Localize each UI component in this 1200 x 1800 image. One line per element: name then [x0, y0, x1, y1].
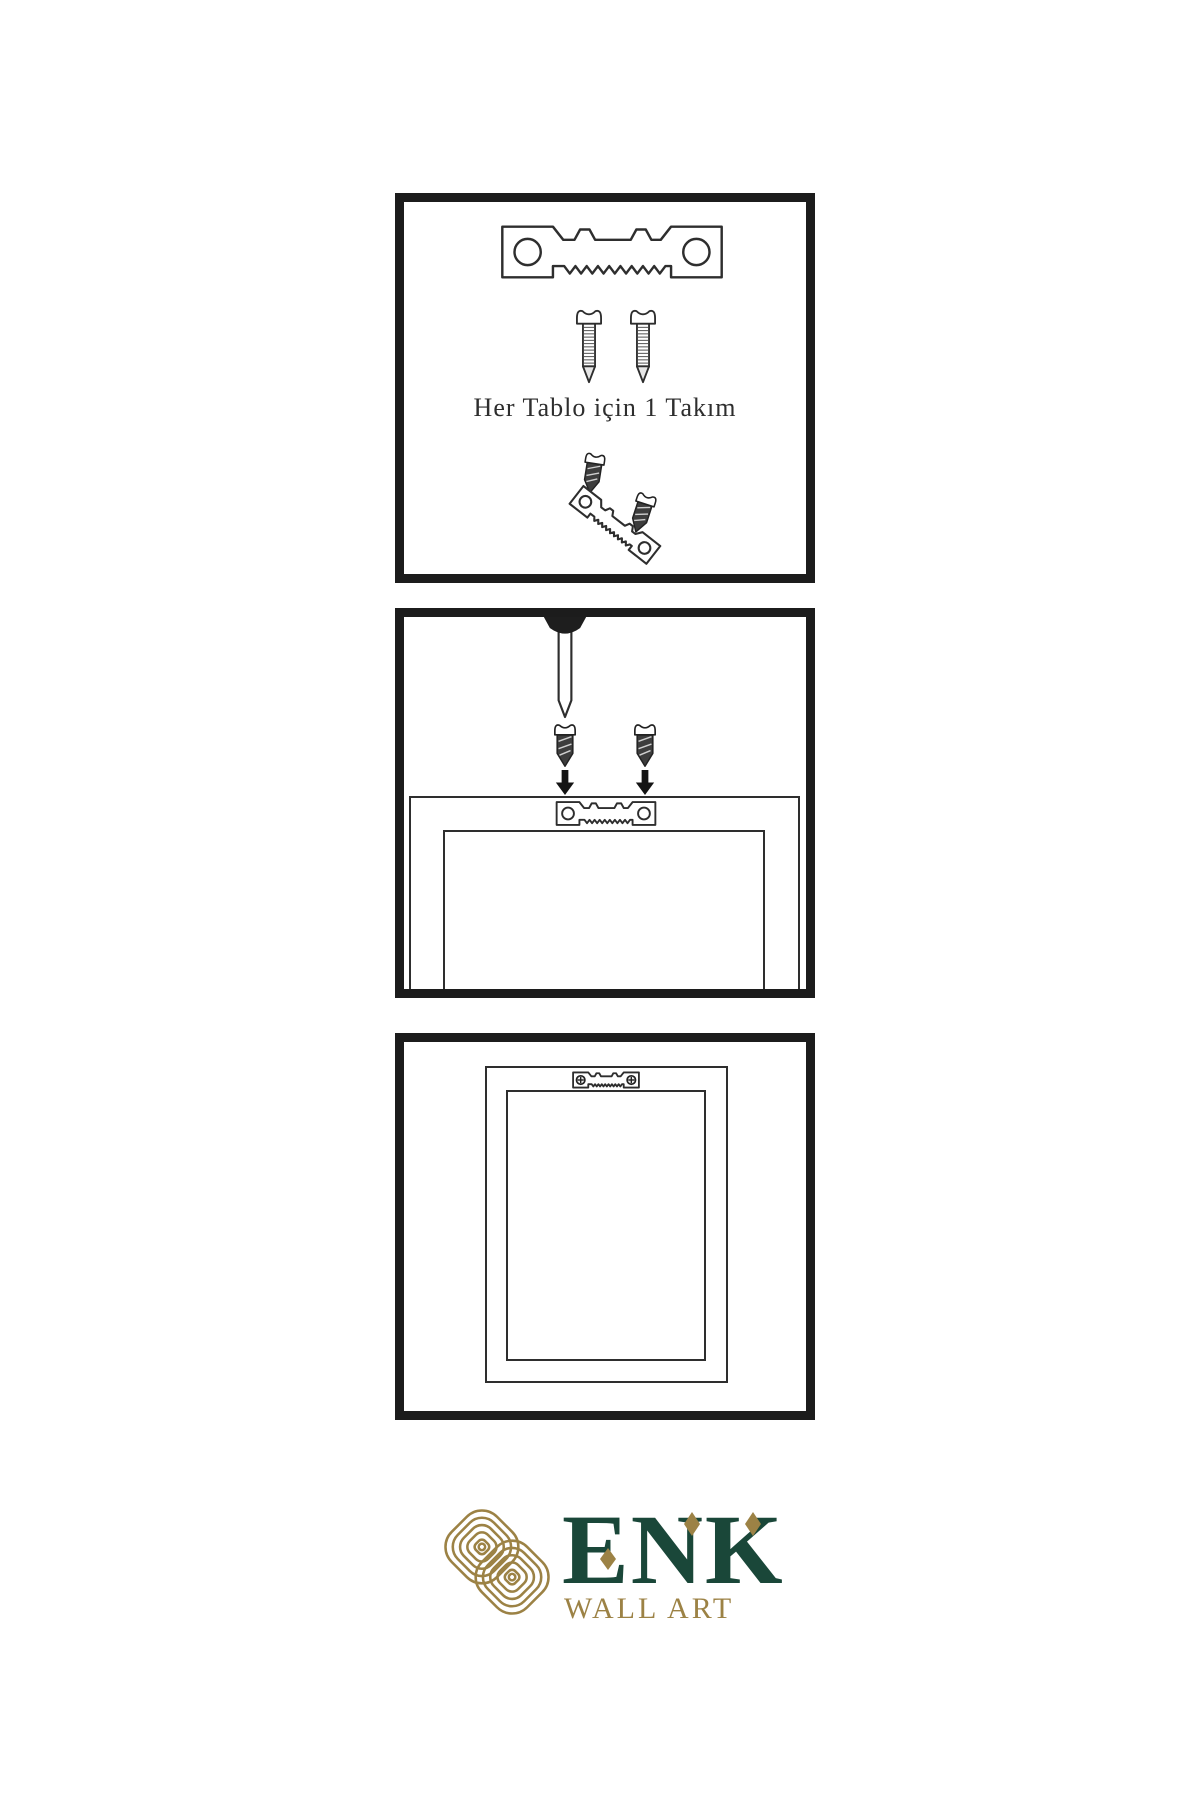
angled-sawtooth-hanger-icon [565, 448, 695, 568]
screw-icon [626, 306, 660, 384]
sawtooth-hanger-icon [494, 222, 730, 282]
sawtooth-hanger-icon [553, 800, 659, 827]
brand-subtitle: WALL ART [564, 1594, 734, 1624]
screw-icon [572, 306, 606, 384]
picture-mat-window [506, 1090, 706, 1361]
down-arrow-icon [634, 770, 656, 796]
step1-panel: Her Tablo için 1 Takım [395, 193, 815, 583]
knot-logo-icon [433, 1498, 561, 1626]
frame-backing-board [443, 830, 765, 996]
step3-panel [395, 1033, 815, 1420]
dark-screw-icon [623, 487, 662, 539]
dark-screw-icon [631, 721, 659, 769]
mounted-hanger-with-screws-icon [572, 1071, 640, 1089]
instruction-sheet: Her Tablo için 1 Takım [0, 0, 1200, 1800]
step2-panel [395, 608, 815, 998]
step1-caption: Her Tablo için 1 Takım [404, 393, 806, 423]
down-arrow-icon [554, 770, 576, 796]
wall-nail-icon [541, 617, 589, 719]
dark-screw-icon [551, 721, 579, 769]
